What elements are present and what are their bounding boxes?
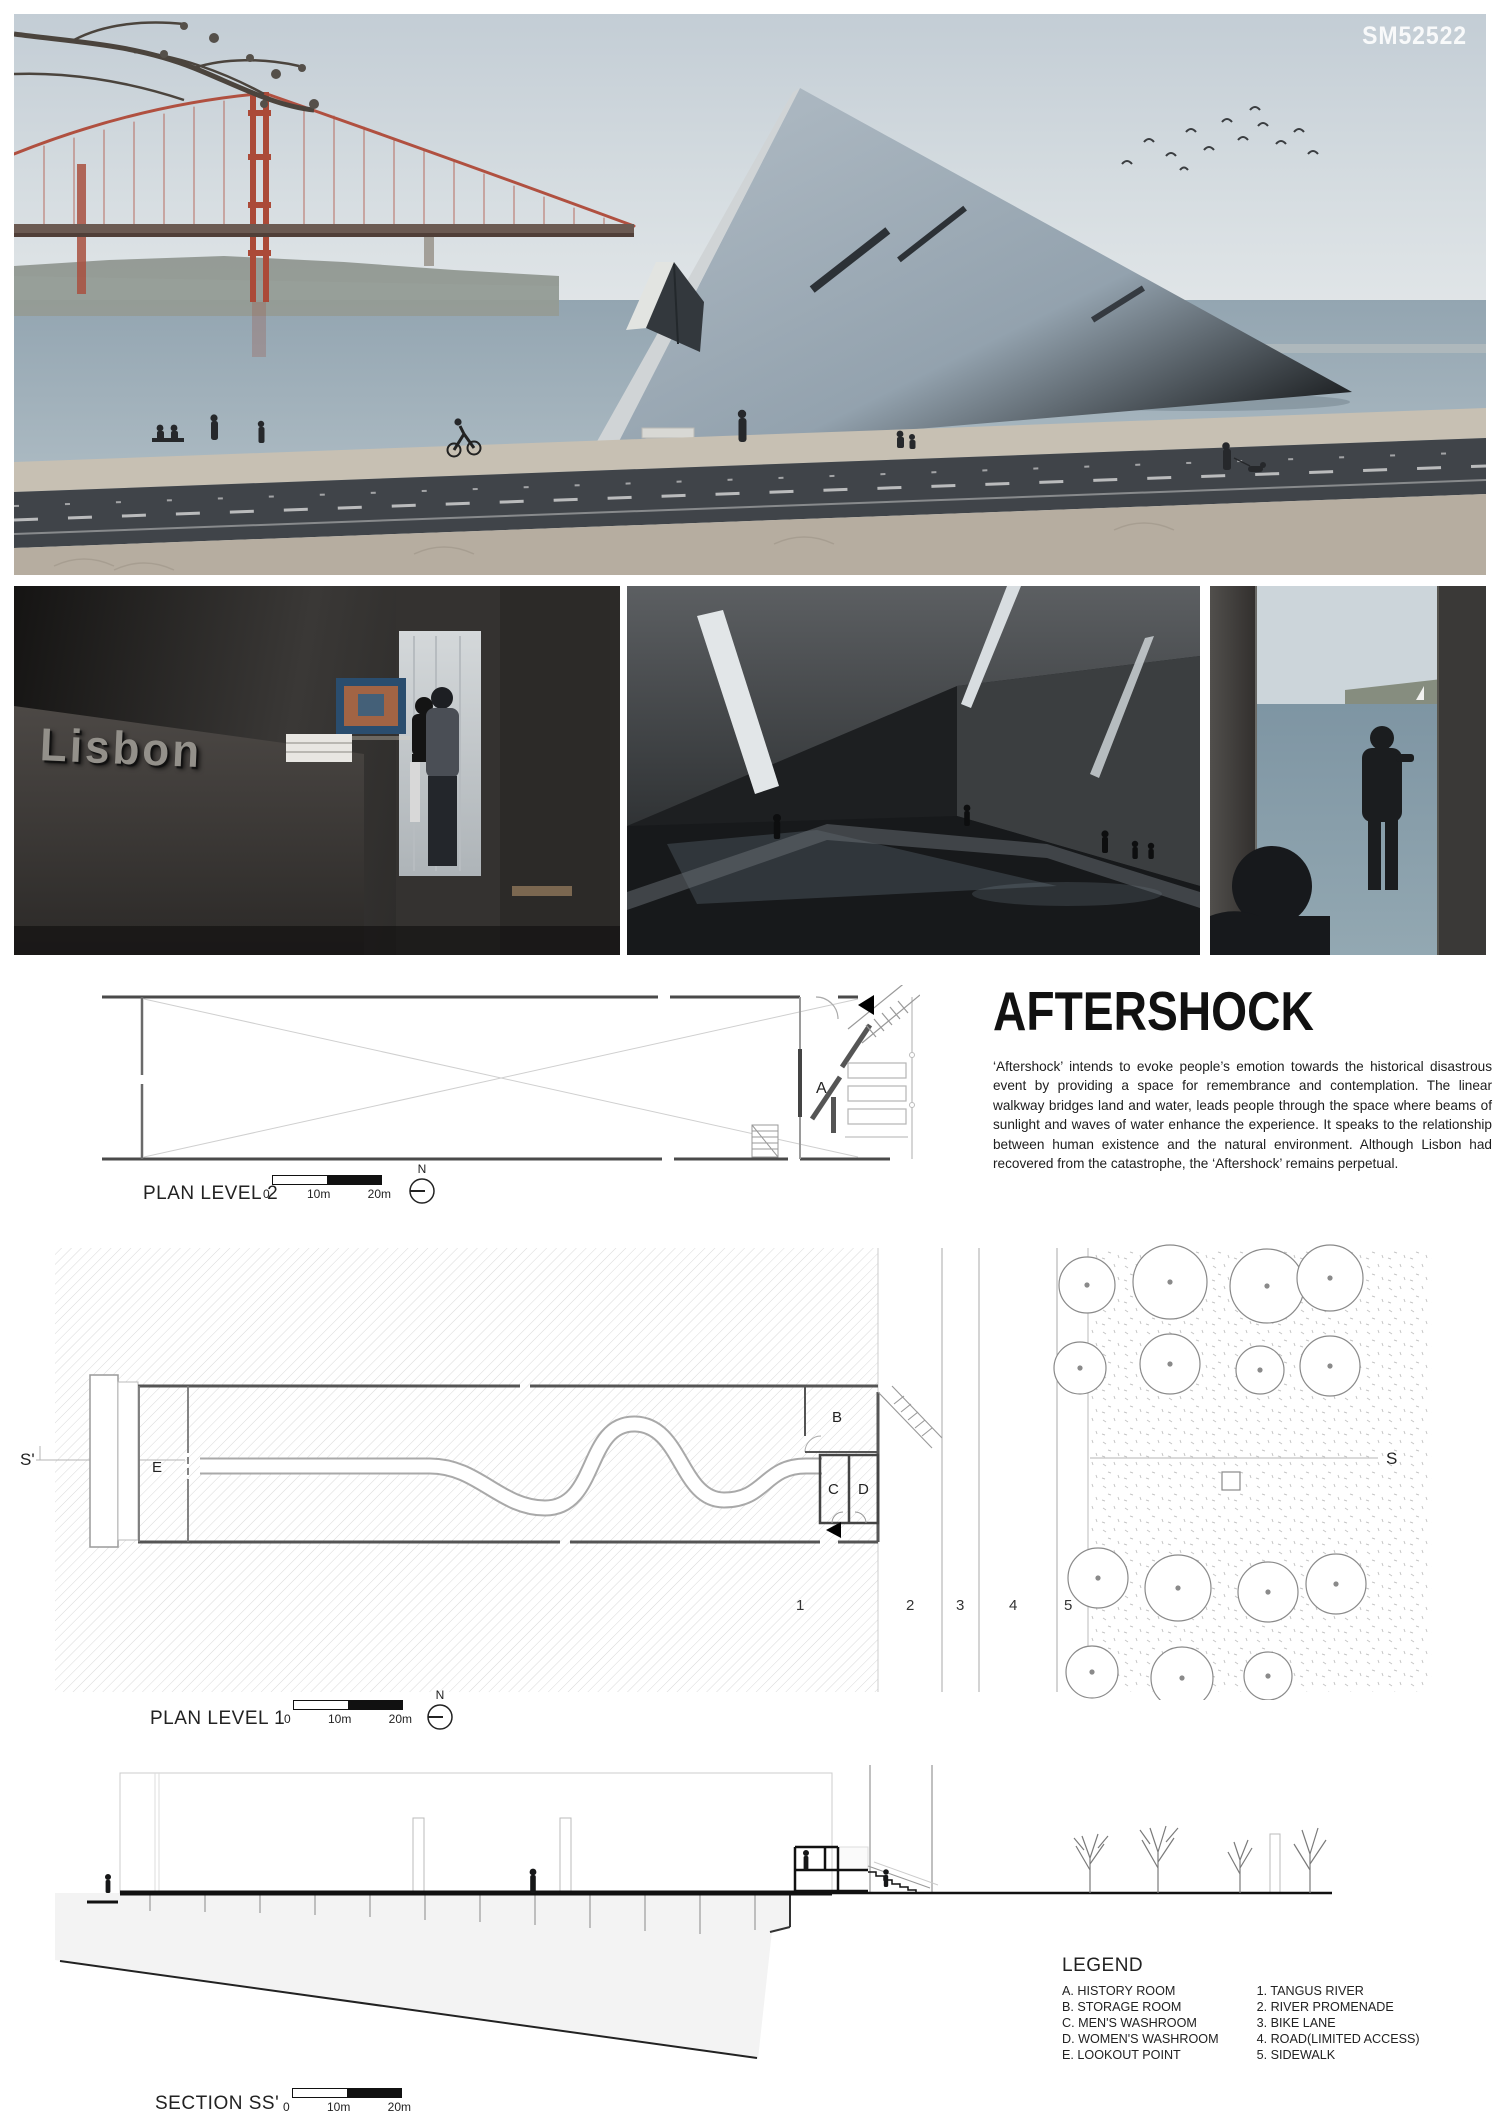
tower-reflection bbox=[252, 302, 266, 357]
zone-3-label: 3 bbox=[956, 1597, 964, 1614]
building-section bbox=[795, 1847, 938, 1893]
scale-twenty: 20m bbox=[368, 1187, 391, 1201]
plan2-stairs bbox=[848, 985, 920, 1043]
floor-light bbox=[512, 886, 572, 896]
legend-room-item: C. MEN'S WASHROOM bbox=[1062, 2015, 1219, 2031]
plan2-open-to-below-x bbox=[144, 999, 858, 1157]
legend-rooms-column: A. HISTORY ROOM B. STORAGE ROOM C. MEN'S… bbox=[1062, 1983, 1219, 2063]
legend-site-column: 1. TANGUS RIVER 2. RIVER PROMENADE 3. BI… bbox=[1257, 1983, 1420, 2063]
section-label: SECTION SS' bbox=[155, 2093, 279, 2115]
scalebar-bar bbox=[292, 2088, 402, 2098]
competition-board: { "code": "SM52522", "title_block": { "t… bbox=[0, 0, 1500, 2122]
right-wall bbox=[500, 586, 620, 955]
entry-arrow bbox=[858, 995, 874, 1015]
plan2-scalebar: 0 10m 20m bbox=[272, 1175, 391, 1201]
scalebar-bar bbox=[272, 1175, 382, 1185]
section-figures bbox=[105, 1850, 889, 1893]
floor-shadow bbox=[14, 926, 620, 955]
scale-ten: 10m bbox=[328, 1712, 351, 1726]
legend: LEGEND A. HISTORY ROOM B. STORAGE ROOM C… bbox=[1062, 1955, 1420, 2063]
zone-1-label: 1 bbox=[796, 1597, 804, 1614]
section-trees bbox=[1074, 1826, 1326, 1893]
scale-ten: 10m bbox=[307, 1187, 330, 1201]
plan1-label: PLAN LEVEL 1 bbox=[150, 1708, 285, 1730]
wall-fin bbox=[413, 1818, 424, 1893]
legend-site-item: 1. TANGUS RIVER bbox=[1257, 1983, 1420, 1999]
right-pillar bbox=[1438, 586, 1486, 955]
standing-figure bbox=[426, 687, 459, 866]
bridge-deck bbox=[14, 224, 634, 233]
scale-zero: 0 bbox=[283, 2100, 290, 2114]
room-e-label: E bbox=[152, 1459, 162, 1476]
legend-site-item: 5. SIDEWALK bbox=[1257, 2047, 1420, 2063]
legend-room-item: D. WOMEN'S WASHROOM bbox=[1062, 2031, 1219, 2047]
zone-2-label: 2 bbox=[906, 1597, 914, 1614]
plan-level-1-drawing: S' S E B C bbox=[0, 1240, 1500, 1700]
entry-code: SM52522 bbox=[1362, 22, 1467, 51]
scalebar-bar bbox=[293, 1700, 403, 1710]
wall-fin bbox=[560, 1818, 571, 1893]
legend-room-item: E. LOOKOUT POINT bbox=[1062, 2047, 1219, 2063]
scale-ten: 10m bbox=[327, 2100, 350, 2114]
plan2-label: PLAN LEVEL 2 bbox=[143, 1183, 278, 1205]
board-title: AFTERSHOCK bbox=[993, 979, 1314, 1043]
bridge-pier bbox=[424, 236, 434, 266]
render-lookout bbox=[1210, 586, 1486, 955]
plan-level-2-drawing: A bbox=[100, 985, 920, 1173]
plan2-north-arrow: N bbox=[405, 1162, 439, 1209]
zone-4-label: 4 bbox=[1009, 1597, 1017, 1614]
project-description: ‘Aftershock’ intends to evoke people’s e… bbox=[993, 1057, 1492, 1173]
render-history-room: Lisbon bbox=[14, 586, 620, 955]
plan2-lower-stair bbox=[752, 1125, 778, 1157]
room-b-label: B bbox=[832, 1409, 842, 1426]
section-scalebar: 0 10m 20m bbox=[292, 2088, 411, 2114]
plan2-room-a: A bbox=[752, 985, 920, 1159]
site-furniture bbox=[1222, 1472, 1240, 1490]
main-hall-scene bbox=[627, 586, 1200, 955]
legend-heading: LEGEND bbox=[1062, 1955, 1420, 1977]
scale-zero: 0 bbox=[284, 1712, 291, 1726]
plan2-benches bbox=[848, 1063, 906, 1124]
room-c-label: C bbox=[828, 1481, 839, 1498]
pavilion-envelope-outline bbox=[120, 1773, 832, 1893]
scale-zero: 0 bbox=[263, 1187, 270, 1201]
legend-room-item: B. STORAGE ROOM bbox=[1062, 1999, 1219, 2015]
wall-fin bbox=[1270, 1834, 1280, 1893]
legend-room-item: A. HISTORY ROOM bbox=[1062, 1983, 1219, 1999]
plan1-north-arrow: N bbox=[423, 1688, 457, 1735]
section-marker-s-prime: S' bbox=[20, 1450, 35, 1469]
room-a-label: A bbox=[816, 1080, 827, 1097]
legend-site-item: 2. RIVER PROMENADE bbox=[1257, 1999, 1420, 2015]
section-marker-s: S bbox=[1386, 1449, 1397, 1468]
hero-scene bbox=[14, 14, 1486, 575]
plan1-exterior-stairs bbox=[878, 1386, 942, 1448]
lisbon-3d-sign: Lisbon bbox=[39, 719, 203, 779]
hero-render: SM52522 bbox=[14, 14, 1486, 575]
legend-site-item: 3. BIKE LANE bbox=[1257, 2015, 1420, 2031]
render-main-hall bbox=[627, 586, 1200, 955]
north-label: N bbox=[423, 1688, 457, 1702]
lookout-platform bbox=[90, 1375, 118, 1547]
zone-5-label: 5 bbox=[1064, 1597, 1072, 1614]
legend-site-item: 4. ROAD(LIMITED ACCESS) bbox=[1257, 2031, 1420, 2047]
lookout-scene bbox=[1210, 586, 1486, 955]
scale-twenty: 20m bbox=[389, 1712, 412, 1726]
book-stack bbox=[286, 734, 352, 762]
north-label: N bbox=[405, 1162, 439, 1176]
room-d-label: D bbox=[858, 1481, 869, 1498]
zone-divider-lines bbox=[878, 1248, 1088, 1692]
plan1-scalebar: 0 10m 20m bbox=[293, 1700, 412, 1726]
scale-twenty: 20m bbox=[388, 2100, 411, 2114]
